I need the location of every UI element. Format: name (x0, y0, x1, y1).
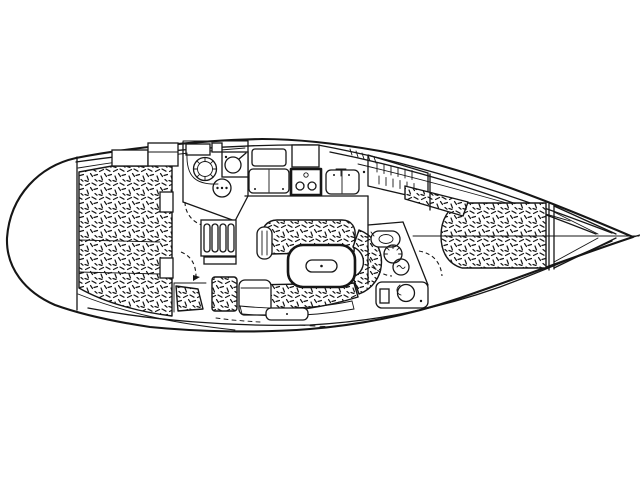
step-tread-1 (204, 224, 210, 252)
berth-notch-1 (160, 192, 173, 212)
aft-head-locker-2 (212, 143, 222, 152)
companionway (181, 220, 236, 281)
nav-station (174, 277, 271, 315)
sink-dot-1 (333, 174, 335, 176)
hull-dash-row-1 (216, 318, 260, 322)
galley (245, 145, 368, 196)
fwd-vanity-partition (380, 289, 389, 303)
galley-panel-1 (252, 149, 286, 166)
galley-sink (326, 170, 359, 194)
aft-berth-foot-wedge (176, 286, 203, 311)
fwd-basin-unit (371, 231, 400, 247)
step-tread-3 (220, 224, 226, 252)
port-shelf-cushion (405, 186, 468, 216)
shower-dot-3 (225, 187, 227, 189)
nav-seat-cushion (212, 277, 237, 311)
fwd-vanity-dot (420, 300, 422, 302)
aft-cabin-door-swing (181, 252, 196, 277)
shower-dot-1 (216, 187, 218, 189)
shower-dot-2 (221, 187, 223, 189)
aft-cabin (79, 143, 178, 316)
screenshot-canvas (0, 0, 640, 480)
icebox-fingerhole-2 (282, 188, 284, 190)
sink-dot-2 (348, 174, 350, 176)
aft-head-locker-1 (186, 144, 210, 155)
chart-table (239, 280, 271, 315)
aft-cabinet-2 (148, 143, 178, 166)
counter-knob-dot (363, 171, 365, 173)
bow-v-line-2 (554, 238, 616, 268)
aft-head (183, 141, 248, 226)
aft-head-wall-diag-2 (235, 196, 248, 221)
aft-basin-inner (198, 162, 213, 177)
fwd-toilet-seat-mark (397, 266, 405, 269)
step-tread-4 (228, 224, 234, 252)
aft-toilet-hinge-dot (225, 156, 227, 158)
fwd-head-wall-top (368, 222, 403, 225)
shelf-locker-dot (286, 313, 288, 315)
table-insert-dot (320, 265, 323, 268)
aft-basin-rim-ticks (194, 158, 217, 181)
engine-box (204, 257, 236, 264)
aft-cabinet-1 (112, 150, 148, 166)
icebox-fingerhole-1 (254, 188, 256, 190)
salon-pillar (257, 227, 272, 259)
boat-floor-plan (0, 0, 640, 480)
galley-panel-2 (292, 145, 319, 167)
fwd-head-wall-diag (403, 222, 428, 285)
hull-dash-row-2 (300, 325, 335, 327)
berth-notch-2 (160, 258, 173, 278)
step-tread-2 (212, 224, 218, 252)
